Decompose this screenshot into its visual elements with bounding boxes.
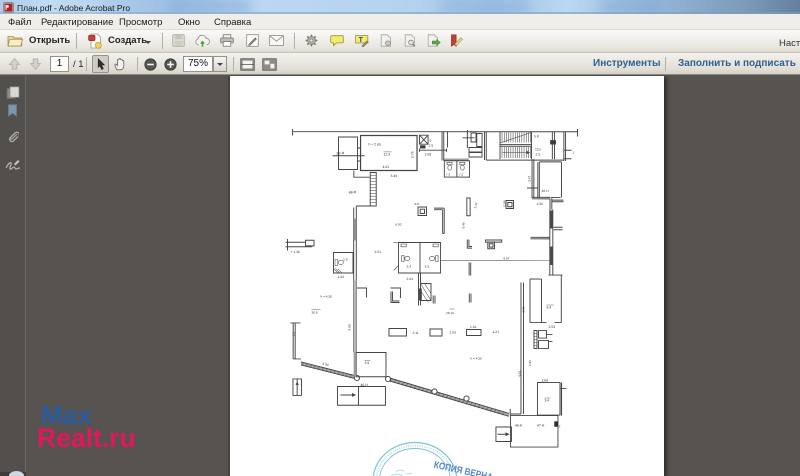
svg-text:h = 4.30: h = 4.30 bbox=[320, 294, 332, 298]
svg-text:8.46: 8.46 bbox=[462, 222, 466, 228]
svg-text:2.11: 2.11 bbox=[412, 331, 418, 335]
svg-text:48-Н: 48-Н bbox=[348, 190, 356, 195]
svg-text:1.93: 1.93 bbox=[449, 331, 456, 335]
svg-text:4.34: 4.34 bbox=[322, 362, 329, 367]
svg-text:6.92: 6.92 bbox=[396, 222, 402, 226]
svg-text:3.3: 3.3 bbox=[407, 264, 412, 268]
svg-text:7.2: 7.2 bbox=[459, 173, 464, 177]
svg-text:2: 2 bbox=[558, 425, 560, 429]
svg-text:2.96: 2.96 bbox=[521, 306, 525, 312]
svg-text:0.8: 0.8 bbox=[415, 202, 420, 206]
svg-text:46-Н: 46-Н bbox=[515, 424, 523, 428]
svg-text:1: 1 bbox=[573, 151, 575, 155]
svg-text:3.4: 3.4 bbox=[544, 399, 549, 403]
svg-text:2.93: 2.93 bbox=[528, 360, 532, 366]
svg-text:7.3: 7.3 bbox=[446, 173, 451, 177]
svg-text:6.67: 6.67 bbox=[504, 256, 510, 260]
svg-text:3.51: 3.51 bbox=[375, 250, 382, 254]
svg-text:12л: 12л bbox=[535, 148, 541, 152]
svg-text:2.09: 2.09 bbox=[425, 152, 432, 156]
svg-text:4.61: 4.61 bbox=[383, 165, 390, 169]
svg-text:9.4: 9.4 bbox=[546, 306, 551, 310]
svg-text:1.37: 1.37 bbox=[473, 202, 478, 209]
svg-text:2.5: 2.5 bbox=[429, 143, 434, 147]
svg-text:+ 1.38: + 1.38 bbox=[291, 250, 300, 254]
svg-text:1.92: 1.92 bbox=[470, 325, 477, 329]
svg-text:2.84: 2.84 bbox=[406, 277, 413, 281]
svg-text:8.88: 8.88 bbox=[347, 324, 351, 330]
svg-text:3.21: 3.21 bbox=[492, 330, 499, 334]
svg-text:h = 2.65: h = 2.65 bbox=[369, 142, 381, 146]
svg-text:h = 4.30: h = 4.30 bbox=[470, 357, 482, 361]
svg-text:2.76: 2.76 bbox=[411, 151, 415, 158]
svg-text:1.50: 1.50 bbox=[537, 202, 544, 206]
svg-text:T: T bbox=[359, 37, 364, 44]
svg-text:КОПИЯ ВЕРНА: КОПИЯ ВЕРНА bbox=[433, 459, 494, 476]
svg-text:2.5: 2.5 bbox=[536, 153, 541, 157]
svg-text:3.3: 3.3 bbox=[425, 264, 430, 268]
svg-text:1.6: 1.6 bbox=[291, 332, 295, 337]
svg-text:2.8: 2.8 bbox=[343, 257, 348, 261]
svg-text:3.9: 3.9 bbox=[364, 361, 369, 365]
svg-text:1.43: 1.43 bbox=[338, 275, 345, 279]
svg-text:48-Н: 48-Н bbox=[542, 189, 550, 193]
svg-text:30.9: 30.9 bbox=[311, 310, 317, 314]
svg-text:2.53: 2.53 bbox=[548, 325, 555, 329]
svg-text:3.44: 3.44 bbox=[391, 174, 398, 178]
svg-text:5.8: 5.8 bbox=[534, 135, 539, 139]
svg-text:12.9: 12.9 bbox=[384, 152, 391, 156]
svg-text:5: 5 bbox=[430, 138, 432, 142]
svg-text:52-Н: 52-Н bbox=[336, 151, 344, 156]
svg-text:0.54: 0.54 bbox=[503, 200, 507, 206]
svg-text:47-Н: 47-Н bbox=[537, 424, 545, 428]
svg-text:3.47: 3.47 bbox=[528, 175, 532, 182]
svg-text:6.61: 6.61 bbox=[517, 370, 521, 376]
svg-text:1.60: 1.60 bbox=[541, 379, 548, 383]
svg-text:26.13: 26.13 bbox=[446, 311, 454, 315]
